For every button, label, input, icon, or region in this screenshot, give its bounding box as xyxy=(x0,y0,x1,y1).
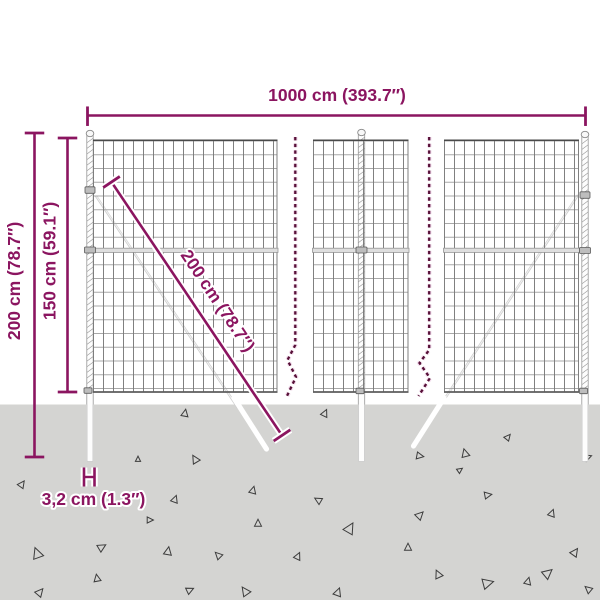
svg-text:150 cm (59.1″): 150 cm (59.1″) xyxy=(40,202,60,320)
svg-text:1000 cm (393.7″): 1000 cm (393.7″) xyxy=(268,85,406,105)
svg-text:3,2 cm (1.3″): 3,2 cm (1.3″) xyxy=(42,489,146,509)
svg-text:200 cm (78.7″): 200 cm (78.7″) xyxy=(4,222,24,340)
